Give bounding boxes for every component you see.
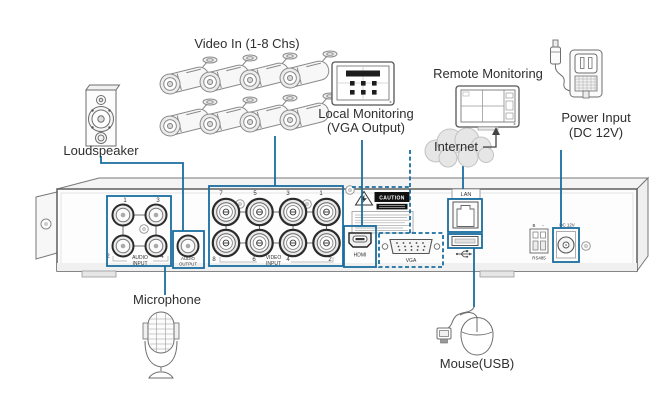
bnc-ch5 [246, 199, 272, 225]
power-input-sublabel: (DC 12V) [569, 125, 623, 140]
bnc-ch6 [246, 230, 272, 256]
hdmi-label: HDMI [354, 253, 367, 259]
video-in-label: Video In (1-8 Chs) [194, 36, 299, 51]
dc-power-jack: DC 12V [553, 223, 579, 263]
rca-audio-out [178, 236, 199, 257]
local-monitor-icon [332, 62, 394, 105]
rca-audio-in-3 [146, 205, 167, 226]
loudspeaker-icon [86, 85, 120, 146]
chassis-foot [480, 271, 514, 277]
bnc-ch7 [213, 199, 239, 225]
dvr-connection-diagram: 1 3 2 4 AUDIO INPUT AUDIO OUTPUT 7 5 3 1… [0, 0, 650, 400]
bnc-ch1 [313, 199, 339, 225]
remote-monitoring-label: Remote Monitoring [433, 66, 543, 81]
screw-hole [140, 225, 149, 234]
camera-array [158, 51, 337, 138]
bnc-ch2 [313, 230, 339, 256]
rca-audio-in-2 [113, 236, 134, 257]
remote-monitor-icon [456, 86, 519, 130]
internet-label: Internet [434, 139, 478, 154]
mouse-icon [437, 307, 493, 355]
local-monitoring-sublabel: (VGA Output) [327, 120, 405, 135]
screw-hole [582, 242, 591, 251]
caution-title: CAUTION [379, 195, 405, 201]
power-input-label: Power Input [561, 110, 631, 125]
lan-port: LAN [448, 189, 482, 232]
audio-output-label: AUDIO [181, 256, 195, 261]
rj45-jack [457, 206, 474, 227]
bnc-ch8 [213, 230, 239, 256]
loudspeaker-label: Loudspeaker [63, 143, 139, 158]
rs485-pin-label: B [533, 223, 536, 228]
audio-output-label: OUTPUT [179, 262, 197, 267]
chassis-foot [82, 271, 116, 277]
rca-audio-in-1 [113, 205, 134, 226]
rs485-terminal: B - RS485 [530, 223, 548, 261]
bnc-ch3 [280, 199, 306, 225]
lan-label: LAN [461, 192, 472, 198]
vga-symbol [346, 71, 380, 77]
microphone-label: Microphone [133, 292, 201, 307]
microphone-icon [143, 312, 179, 378]
bnc-ch4 [280, 230, 306, 256]
usb-plug [441, 339, 448, 343]
rs485-label: RS485 [532, 256, 546, 261]
mouse-label: Mouse(USB) [440, 356, 514, 371]
vga-label: VGA [406, 258, 417, 264]
power-adapter-icon [551, 40, 603, 98]
local-monitoring-label: Local Monitoring [318, 106, 413, 121]
